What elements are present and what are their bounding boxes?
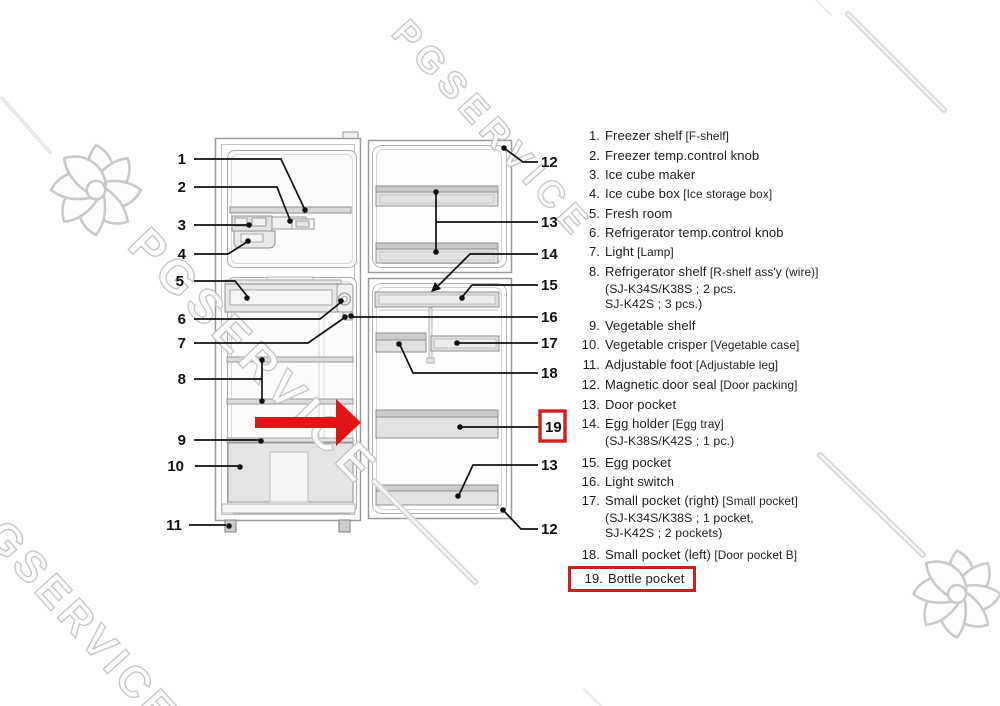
parts-list-item-11: 11.Adjustable foot [Adjustable leg] bbox=[574, 355, 914, 375]
callout-label-15: 15 bbox=[541, 277, 558, 294]
item-text: Freezer shelf bbox=[605, 128, 682, 143]
item-text: Vegetable crisper bbox=[605, 337, 707, 352]
item-note: [Small pocket] bbox=[719, 494, 798, 508]
parts-list-item-2: 2.Freezer temp.control knob bbox=[574, 146, 914, 165]
parts-list-item-18: 18.Small pocket (left) [Door pocket B] bbox=[574, 545, 914, 565]
parts-list-item-9: 9.Vegetable shelf bbox=[574, 316, 914, 335]
item-number: 17. bbox=[574, 491, 600, 510]
parts-list-item-7: 7.Light [Lamp] bbox=[574, 242, 914, 262]
parts-list-item-17: 17.Small pocket (right) [Small pocket] bbox=[574, 491, 914, 511]
callout-label-17: 17 bbox=[541, 335, 558, 352]
item-text: Egg pocket bbox=[605, 455, 671, 470]
callout-label-4: 4 bbox=[178, 246, 187, 263]
item-text: Light switch bbox=[605, 474, 674, 489]
item-number: 10. bbox=[574, 335, 600, 354]
parts-list-item-10: 10.Vegetable crisper [Vegetable case] bbox=[574, 335, 914, 355]
item-number: 11. bbox=[574, 355, 600, 374]
item-note: [R-shelf ass'y (wire)] bbox=[707, 265, 819, 279]
parts-list-item-12: 12.Magnetic door seal [Door packing] bbox=[574, 375, 914, 395]
item-text: Refrigerator shelf bbox=[605, 264, 707, 279]
item-variant-note: SJ-K42S ; 3 pcs.) bbox=[574, 297, 914, 312]
callout-label-9: 9 bbox=[178, 432, 186, 449]
callout-label-13: 13 bbox=[541, 457, 558, 474]
parts-list-item-5: 5.Fresh room bbox=[574, 204, 914, 223]
item-text: Adjustable foot bbox=[605, 357, 693, 372]
callout-label-18: 18 bbox=[541, 365, 558, 382]
item-text: Magnetic door seal bbox=[605, 377, 717, 392]
item-note: [Door pocket B] bbox=[711, 548, 797, 562]
callout-label-12: 12 bbox=[541, 154, 558, 171]
parts-list: 1.Freezer shelf [F-shelf]2.Freezer temp.… bbox=[574, 126, 914, 592]
item-number: 3. bbox=[574, 165, 600, 184]
flower-stem-icon bbox=[2, 98, 50, 152]
item-variant-note: (SJ-K34S/K38S ; 2 pcs. bbox=[574, 282, 914, 297]
parts-list-item-19: 19.Bottle pocket bbox=[574, 565, 914, 592]
callout-label-5: 5 bbox=[176, 273, 184, 290]
callout-label-16: 16 bbox=[541, 309, 558, 326]
callout-label-6: 6 bbox=[178, 311, 186, 328]
item-number: 7. bbox=[574, 242, 600, 261]
item-variant-note: (SJ-K34S/K38S ; 1 pocket, bbox=[574, 511, 914, 526]
item-number: 9. bbox=[574, 316, 600, 335]
parts-list-item-1: 1.Freezer shelf [F-shelf] bbox=[574, 126, 914, 146]
item-text: Freezer temp.control knob bbox=[605, 148, 759, 163]
item-variant-note: SJ-K42S ; 2 pockets) bbox=[574, 526, 914, 541]
item-text: Small pocket (left) bbox=[605, 547, 711, 562]
item-number: 2. bbox=[574, 146, 600, 165]
parts-list-item-3: 3.Ice cube maker bbox=[574, 165, 914, 184]
callout-label-7: 7 bbox=[178, 335, 186, 352]
item-text: Ice cube box bbox=[605, 186, 680, 201]
item-text: Small pocket (right) bbox=[605, 493, 719, 508]
pgservice-flower-icon bbox=[51, 145, 141, 235]
item-note: [Vegetable case] bbox=[707, 338, 799, 352]
highlight-box-list-item: 19.Bottle pocket bbox=[568, 566, 696, 592]
parts-list-item-8: 8.Refrigerator shelf [R-shelf ass'y (wir… bbox=[574, 262, 914, 282]
item-note: [Ice storage box] bbox=[680, 187, 772, 201]
callout-label-13: 13 bbox=[541, 214, 558, 231]
callout-label-19: 19 bbox=[545, 419, 562, 436]
callout-label-14: 14 bbox=[541, 246, 558, 263]
callout-label-10: 10 bbox=[167, 458, 184, 475]
item-note: [Lamp] bbox=[634, 245, 674, 259]
item-note: [Adjustable leg] bbox=[693, 358, 779, 372]
callout-label-12: 12 bbox=[541, 521, 558, 538]
item-text: Ice cube maker bbox=[605, 167, 695, 182]
item-text: Egg holder bbox=[605, 416, 669, 431]
parts-list-item-13: 13.Door pocket bbox=[574, 395, 914, 414]
callout-label-3: 3 bbox=[178, 217, 186, 234]
watermark-text: PGSERVICE bbox=[0, 487, 188, 706]
parts-list-item-14: 14.Egg holder [Egg tray] bbox=[574, 414, 914, 434]
callout-label-2: 2 bbox=[178, 179, 186, 196]
item-text: Door pocket bbox=[605, 397, 676, 412]
item-note: [Egg tray] bbox=[669, 417, 724, 431]
item-number: 8. bbox=[574, 262, 600, 281]
item-number: 18. bbox=[574, 545, 600, 564]
item-note: [F-shelf] bbox=[682, 129, 729, 143]
callout-label-8: 8 bbox=[178, 371, 186, 388]
item-note: [Door packing] bbox=[717, 378, 798, 392]
parts-list-item-15: 15.Egg pocket bbox=[574, 453, 914, 472]
parts-list-item-16: 16.Light switch bbox=[574, 472, 914, 491]
item-number: 5. bbox=[574, 204, 600, 223]
item-variant-note: (SJ-K38S/K42S ; 1 pc.) bbox=[574, 434, 914, 449]
flower-stem-icon bbox=[810, 0, 831, 15]
callout-label-1: 1 bbox=[178, 151, 186, 168]
service-manual-page: PGSERVICE PGSERVICE PGSERVICE bbox=[0, 0, 1000, 706]
item-number: 16. bbox=[574, 472, 600, 491]
pgservice-flower-icon bbox=[913, 550, 1000, 637]
item-text: Refrigerator temp.control knob bbox=[605, 225, 784, 240]
item-number: 13. bbox=[574, 395, 600, 414]
item-text: Light bbox=[605, 244, 634, 259]
item-text: Fresh room bbox=[605, 206, 672, 221]
flower-stem-icon bbox=[584, 689, 612, 706]
parts-list-item-4: 4.Ice cube box [Ice storage box] bbox=[574, 184, 914, 204]
item-text: Vegetable shelf bbox=[605, 318, 695, 333]
item-number: 12. bbox=[574, 375, 600, 394]
item-number: 19. bbox=[577, 569, 603, 588]
callout-label-11: 11 bbox=[166, 517, 182, 534]
item-number: 6. bbox=[574, 223, 600, 242]
item-number: 14. bbox=[574, 414, 600, 433]
parts-list-item-6: 6.Refrigerator temp.control knob bbox=[574, 223, 914, 242]
item-number: 15. bbox=[574, 453, 600, 472]
item-number: 1. bbox=[574, 126, 600, 145]
item-number: 4. bbox=[574, 184, 600, 203]
item-text: Bottle pocket bbox=[608, 571, 684, 586]
flower-stem-icon bbox=[848, 14, 944, 110]
